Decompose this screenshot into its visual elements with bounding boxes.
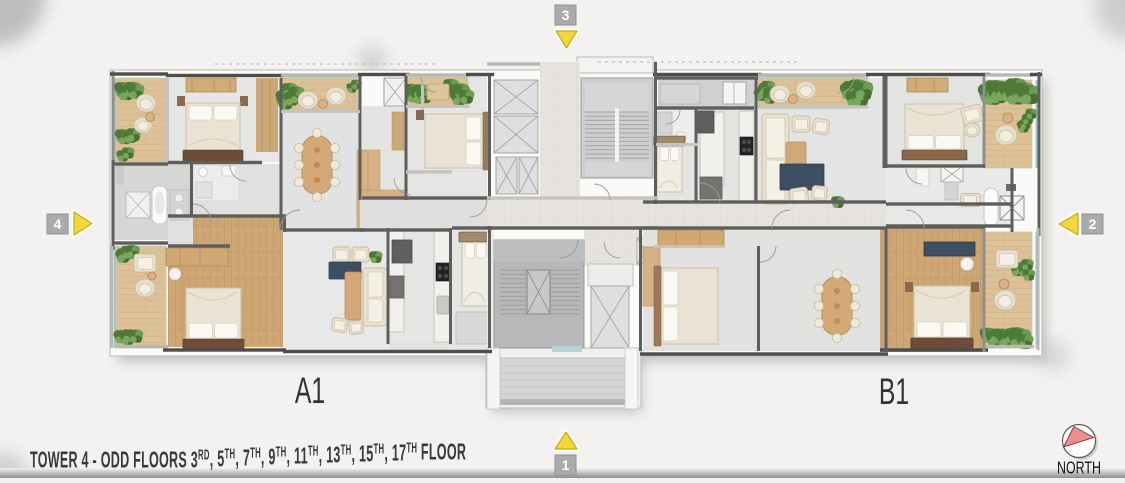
svg-text:B1: B1	[879, 370, 909, 412]
svg-text:4: 4	[54, 216, 62, 232]
svg-text:NORTH: NORTH	[1057, 458, 1101, 478]
svg-text:1: 1	[562, 457, 570, 473]
svg-text:2: 2	[1089, 216, 1097, 232]
svg-text:A1: A1	[295, 369, 325, 411]
svg-text:3: 3	[562, 7, 570, 23]
